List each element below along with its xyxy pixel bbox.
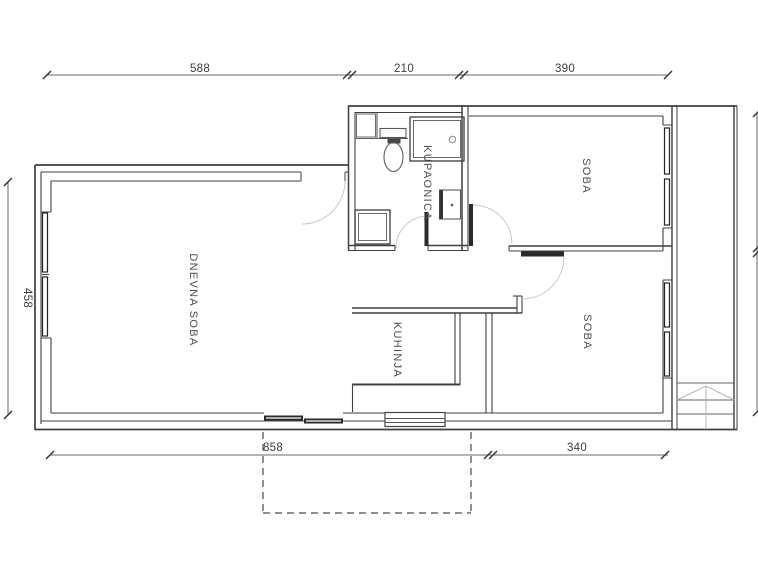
- dim-label-top-right: 390: [555, 63, 575, 75]
- shower-icon: [410, 117, 464, 161]
- sink-icon: [380, 129, 406, 144]
- dimension-lines: [4, 71, 758, 459]
- bedroom2-door-swing-arc: [522, 257, 564, 299]
- window-icon: [665, 332, 670, 376]
- floor-plan-drawing: 588 210 390 458 858 340 DNEVNA SOBA KUPA…: [0, 0, 758, 564]
- room-label-bathroom: KUPAONICA: [421, 145, 433, 221]
- toilet-icon: [384, 143, 403, 172]
- dim-label-bottom-left: 858: [263, 442, 283, 454]
- dim-label-top-left: 588: [190, 63, 210, 75]
- bathroom-cabinet-icon: [357, 114, 376, 137]
- balcony-walls: [672, 106, 737, 430]
- window-icon: [43, 277, 48, 336]
- boiler-icon: [440, 190, 461, 219]
- bathroom-fixtures: [355, 113, 464, 245]
- dim-label-left: 458: [21, 288, 33, 308]
- window-icon: [665, 179, 670, 225]
- washing-machine-icon: [355, 210, 390, 244]
- window-icon: [665, 283, 670, 327]
- window-icon: [665, 128, 670, 174]
- balcony-stair-hatch: [677, 386, 734, 429]
- bedroom1-door-swing-arc: [473, 205, 512, 244]
- room-label-living-room: DNEVNA SOBA: [187, 253, 199, 346]
- dim-label-bottom-right: 340: [567, 442, 587, 454]
- window-symbols: [43, 128, 670, 427]
- room-label-bedroom-bottom: SOBA: [581, 314, 593, 350]
- dimension-ticks: [4, 71, 758, 459]
- bedroom1-door-leaf: [469, 204, 473, 246]
- window-icon: [43, 213, 48, 272]
- floor-plan-page: 588 210 390 458 858 340 DNEVNA SOBA KUPA…: [0, 0, 758, 564]
- terrace-dashed-outline: [263, 432, 471, 513]
- room-label-bedroom-top: SOBA: [580, 158, 592, 194]
- exterior-walls: [35, 106, 737, 430]
- room-label-kitchen: KUHINJA: [391, 322, 403, 378]
- bedroom2-door-leaf: [521, 252, 564, 257]
- dim-label-top-middle: 210: [394, 63, 414, 75]
- window-icon: [385, 413, 445, 427]
- entry-door-swing-arc: [302, 181, 345, 224]
